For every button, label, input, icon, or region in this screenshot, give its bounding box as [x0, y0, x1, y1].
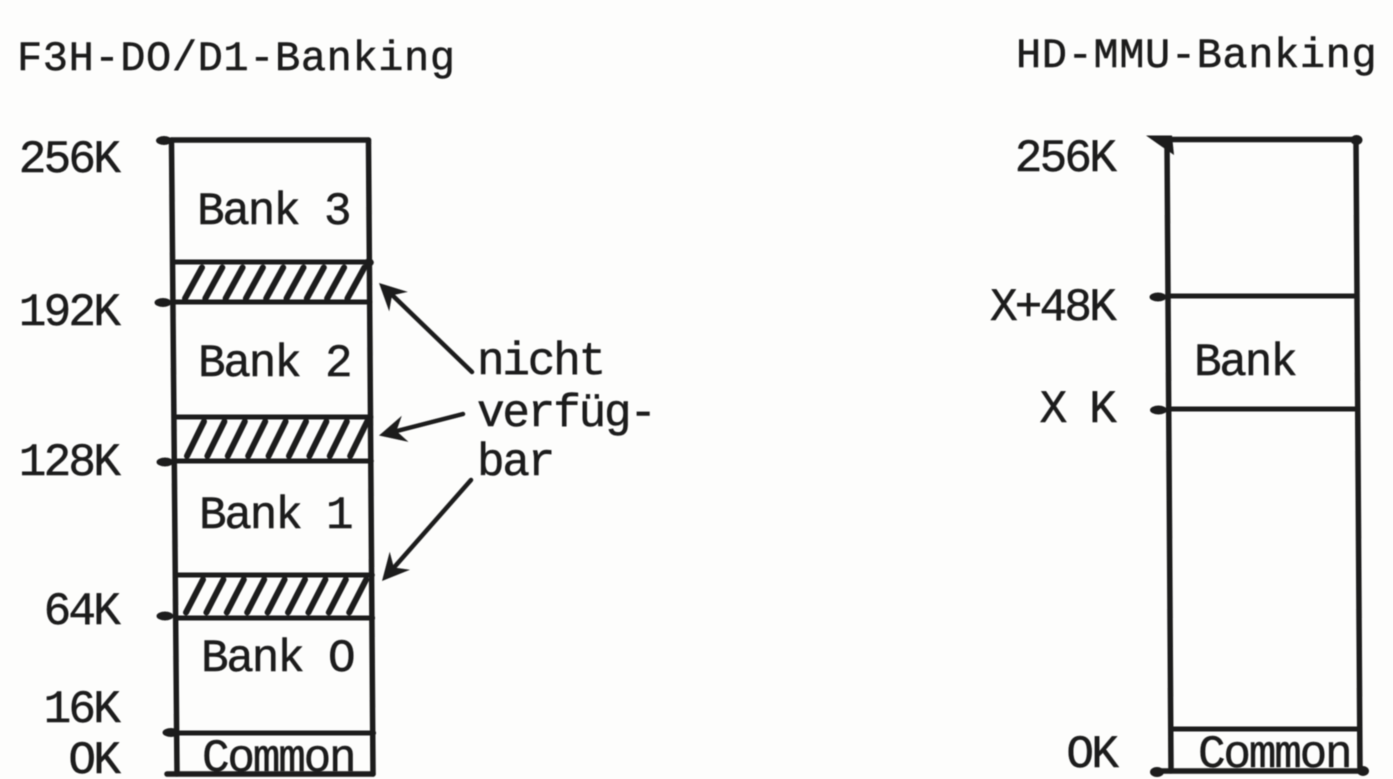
svg-text:128K: 128K	[19, 437, 121, 489]
svg-text:HD-MMU-Banking: HD-MMU-Banking	[1016, 32, 1377, 80]
svg-text:Common: Common	[202, 733, 354, 779]
svg-text:X K: X K	[1040, 384, 1118, 436]
svg-text:256K: 256K	[19, 134, 121, 186]
svg-text:nicht: nicht	[477, 336, 604, 388]
svg-text:X+48K: X+48K	[990, 282, 1117, 334]
svg-text:Bank 2: Bank 2	[198, 338, 350, 390]
svg-text:192K: 192K	[19, 287, 121, 339]
svg-text:verfüg-: verfüg-	[477, 388, 655, 440]
svg-text:bar: bar	[477, 437, 553, 489]
svg-text:Bank 1: Bank 1	[199, 490, 352, 542]
svg-text:Bank O: Bank O	[201, 633, 354, 685]
svg-text:16K: 16K	[44, 684, 122, 736]
svg-text:F3H-DO/D1-Banking: F3H-DO/D1-Banking	[17, 35, 456, 83]
svg-text:Bank: Bank	[1194, 337, 1296, 389]
svg-text:Common: Common	[1198, 729, 1350, 779]
svg-text:OK: OK	[1066, 729, 1119, 779]
svg-text:Bank 3: Bank 3	[197, 186, 349, 238]
svg-text:64K: 64K	[44, 586, 122, 638]
svg-text:256K: 256K	[1015, 133, 1117, 185]
svg-text:OK: OK	[68, 735, 121, 779]
